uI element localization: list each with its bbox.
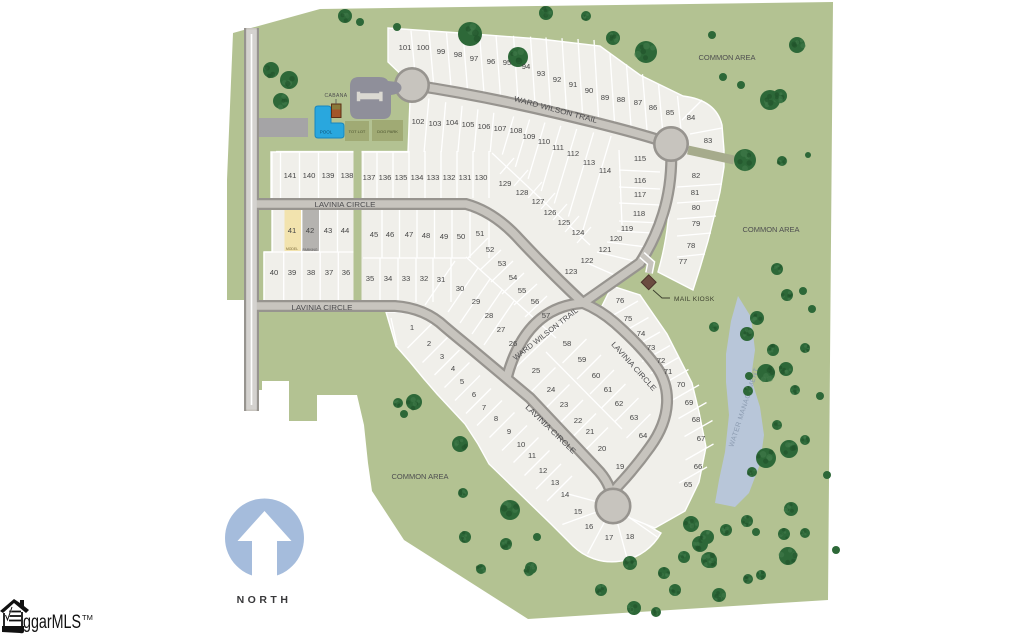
svg-text:21: 21	[586, 427, 595, 436]
svg-text:89: 89	[601, 93, 610, 102]
svg-text:136: 136	[379, 173, 392, 182]
svg-text:135: 135	[395, 173, 408, 182]
svg-text:63: 63	[630, 413, 639, 422]
svg-text:62: 62	[615, 399, 624, 408]
svg-text:45: 45	[370, 230, 379, 239]
svg-text:24: 24	[547, 385, 556, 394]
svg-text:11: 11	[528, 451, 536, 460]
svg-text:4: 4	[451, 364, 456, 373]
svg-text:9: 9	[507, 427, 511, 436]
svg-text:3: 3	[440, 352, 444, 361]
svg-text:18: 18	[626, 532, 635, 541]
svg-text:POOL: POOL	[320, 130, 333, 135]
svg-text:99: 99	[437, 47, 446, 56]
svg-text:53: 53	[498, 259, 507, 268]
svg-text:100: 100	[417, 43, 430, 52]
svg-text:47: 47	[405, 230, 414, 239]
svg-text:5: 5	[460, 377, 464, 386]
svg-text:117: 117	[634, 190, 646, 199]
svg-text:119: 119	[621, 224, 633, 233]
svg-text:76: 76	[616, 296, 625, 305]
svg-text:41: 41	[288, 226, 297, 235]
svg-text:118: 118	[633, 209, 645, 218]
svg-text:34: 34	[384, 274, 393, 283]
svg-text:1: 1	[410, 323, 414, 332]
svg-text:COMMON AREA: COMMON AREA	[743, 227, 800, 234]
svg-text:29: 29	[472, 297, 481, 306]
svg-text:42: 42	[306, 226, 315, 235]
svg-text:110: 110	[538, 137, 550, 146]
svg-text:93: 93	[537, 69, 546, 78]
svg-text:133: 133	[427, 173, 440, 182]
svg-text:129: 129	[499, 179, 512, 188]
svg-text:52: 52	[486, 245, 495, 254]
svg-text:108: 108	[510, 126, 523, 135]
svg-text:66: 66	[694, 462, 703, 471]
svg-text:131: 131	[459, 173, 472, 182]
svg-text:139: 139	[322, 171, 335, 180]
svg-text:23: 23	[560, 400, 569, 409]
svg-text:121: 121	[599, 245, 612, 254]
svg-text:106: 106	[478, 122, 491, 131]
svg-text:113: 113	[583, 158, 595, 167]
svg-text:51: 51	[476, 229, 485, 238]
svg-text:60: 60	[592, 371, 601, 380]
svg-text:132: 132	[443, 173, 456, 182]
svg-text:15: 15	[574, 507, 583, 516]
svg-text:30: 30	[456, 284, 465, 293]
svg-text:13: 13	[551, 478, 560, 487]
svg-text:123: 123	[565, 267, 578, 276]
svg-text:LAVINIA CIRCLE: LAVINIA CIRCLE	[315, 200, 376, 209]
svg-text:115: 115	[634, 154, 646, 163]
svg-text:87: 87	[634, 98, 643, 107]
svg-text:72: 72	[657, 356, 666, 365]
svg-text:67: 67	[697, 434, 706, 443]
svg-text:79: 79	[692, 219, 701, 228]
svg-text:134: 134	[411, 173, 425, 182]
svg-text:128: 128	[516, 188, 529, 197]
svg-text:107: 107	[494, 124, 507, 133]
svg-text:127: 127	[532, 197, 545, 206]
svg-text:92: 92	[553, 75, 562, 84]
svg-text:83: 83	[704, 136, 713, 145]
svg-text:69: 69	[685, 398, 694, 407]
svg-text:ggarMLS: ggarMLS	[23, 612, 81, 633]
svg-text:61: 61	[604, 385, 613, 394]
svg-text:16: 16	[585, 522, 594, 531]
svg-text:7: 7	[482, 403, 486, 412]
svg-text:DOG PARK: DOG PARK	[377, 129, 398, 134]
svg-text:MAIL KIOSK: MAIL KIOSK	[674, 296, 715, 303]
svg-text:40: 40	[270, 268, 279, 277]
svg-text:94: 94	[522, 62, 531, 71]
svg-text:8: 8	[494, 414, 498, 423]
svg-text:56: 56	[531, 297, 540, 306]
svg-text:2: 2	[427, 339, 431, 348]
svg-text:80: 80	[692, 203, 701, 212]
svg-text:31: 31	[437, 275, 446, 284]
svg-text:137: 137	[363, 173, 376, 182]
svg-text:28: 28	[485, 311, 494, 320]
svg-text:120: 120	[610, 234, 623, 243]
svg-text:116: 116	[634, 176, 646, 185]
svg-text:33: 33	[402, 274, 411, 283]
svg-text:50: 50	[457, 232, 466, 241]
svg-text:PARKING: PARKING	[302, 248, 317, 252]
svg-text:36: 36	[342, 268, 351, 277]
svg-text:98: 98	[454, 50, 463, 59]
svg-text:19: 19	[616, 462, 625, 471]
svg-text:57: 57	[542, 311, 551, 320]
svg-text:126: 126	[544, 208, 557, 217]
svg-text:103: 103	[429, 119, 442, 128]
svg-text:32: 32	[420, 274, 429, 283]
svg-text:COMMON AREA: COMMON AREA	[699, 55, 756, 62]
svg-text:96: 96	[487, 57, 496, 66]
svg-text:84: 84	[687, 113, 696, 122]
svg-text:75: 75	[624, 314, 633, 323]
svg-text:27: 27	[497, 325, 506, 334]
svg-text:44: 44	[341, 226, 350, 235]
svg-text:TM: TM	[82, 613, 93, 622]
svg-text:TOT LOT: TOT LOT	[349, 129, 366, 134]
svg-text:68: 68	[692, 415, 701, 424]
svg-text:MODEL: MODEL	[286, 247, 298, 251]
svg-text:141: 141	[284, 171, 297, 180]
svg-text:55: 55	[518, 286, 527, 295]
svg-text:12: 12	[539, 466, 548, 475]
svg-text:CABANA: CABANA	[325, 93, 348, 99]
svg-text:122: 122	[581, 256, 594, 265]
svg-text:54: 54	[509, 273, 518, 282]
svg-text:LAVINIA CIRCLE: LAVINIA CIRCLE	[292, 303, 353, 312]
svg-text:109: 109	[523, 132, 536, 141]
svg-text:95: 95	[503, 58, 512, 67]
svg-text:85: 85	[666, 108, 675, 117]
svg-text:104: 104	[446, 118, 460, 127]
svg-text:10: 10	[517, 440, 526, 449]
svg-text:46: 46	[386, 230, 395, 239]
svg-text:78: 78	[687, 241, 696, 250]
svg-text:130: 130	[475, 173, 488, 182]
svg-text:48: 48	[422, 231, 431, 240]
svg-text:73: 73	[647, 343, 656, 352]
svg-text:35: 35	[366, 274, 375, 283]
svg-text:65: 65	[684, 480, 693, 489]
svg-text:6: 6	[472, 390, 476, 399]
svg-text:17: 17	[605, 533, 614, 542]
svg-text:138: 138	[341, 171, 354, 180]
svg-text:90: 90	[585, 86, 594, 95]
svg-text:112: 112	[567, 149, 579, 158]
svg-text:49: 49	[440, 232, 449, 241]
svg-text:43: 43	[324, 226, 333, 235]
svg-text:114: 114	[599, 166, 612, 175]
svg-text:26: 26	[509, 339, 518, 348]
svg-text:124: 124	[572, 228, 586, 237]
svg-text:39: 39	[288, 268, 297, 277]
svg-text:70: 70	[677, 380, 686, 389]
svg-text:64: 64	[639, 431, 648, 440]
svg-text:71: 71	[664, 367, 673, 376]
svg-text:59: 59	[578, 355, 587, 364]
svg-text:37: 37	[325, 268, 334, 277]
svg-text:20: 20	[598, 444, 607, 453]
svg-text:82: 82	[692, 171, 701, 180]
svg-text:91: 91	[569, 80, 578, 89]
svg-text:140: 140	[303, 171, 316, 180]
svg-text:81: 81	[691, 188, 700, 197]
svg-text:NORTH: NORTH	[237, 594, 292, 606]
svg-text:86: 86	[649, 103, 658, 112]
svg-text:111: 111	[552, 143, 564, 152]
svg-text:101: 101	[399, 43, 412, 52]
svg-text:88: 88	[617, 95, 626, 104]
svg-text:14: 14	[561, 490, 570, 499]
svg-text:77: 77	[679, 257, 688, 266]
svg-text:102: 102	[412, 117, 425, 126]
svg-text:125: 125	[558, 218, 571, 227]
svg-text:25: 25	[532, 366, 541, 375]
svg-text:105: 105	[462, 120, 475, 129]
svg-text:38: 38	[307, 268, 316, 277]
svg-text:COMMON AREA: COMMON AREA	[392, 474, 449, 481]
svg-text:58: 58	[563, 339, 572, 348]
svg-text:22: 22	[574, 416, 583, 425]
svg-text:97: 97	[470, 54, 479, 63]
svg-text:74: 74	[637, 329, 646, 338]
